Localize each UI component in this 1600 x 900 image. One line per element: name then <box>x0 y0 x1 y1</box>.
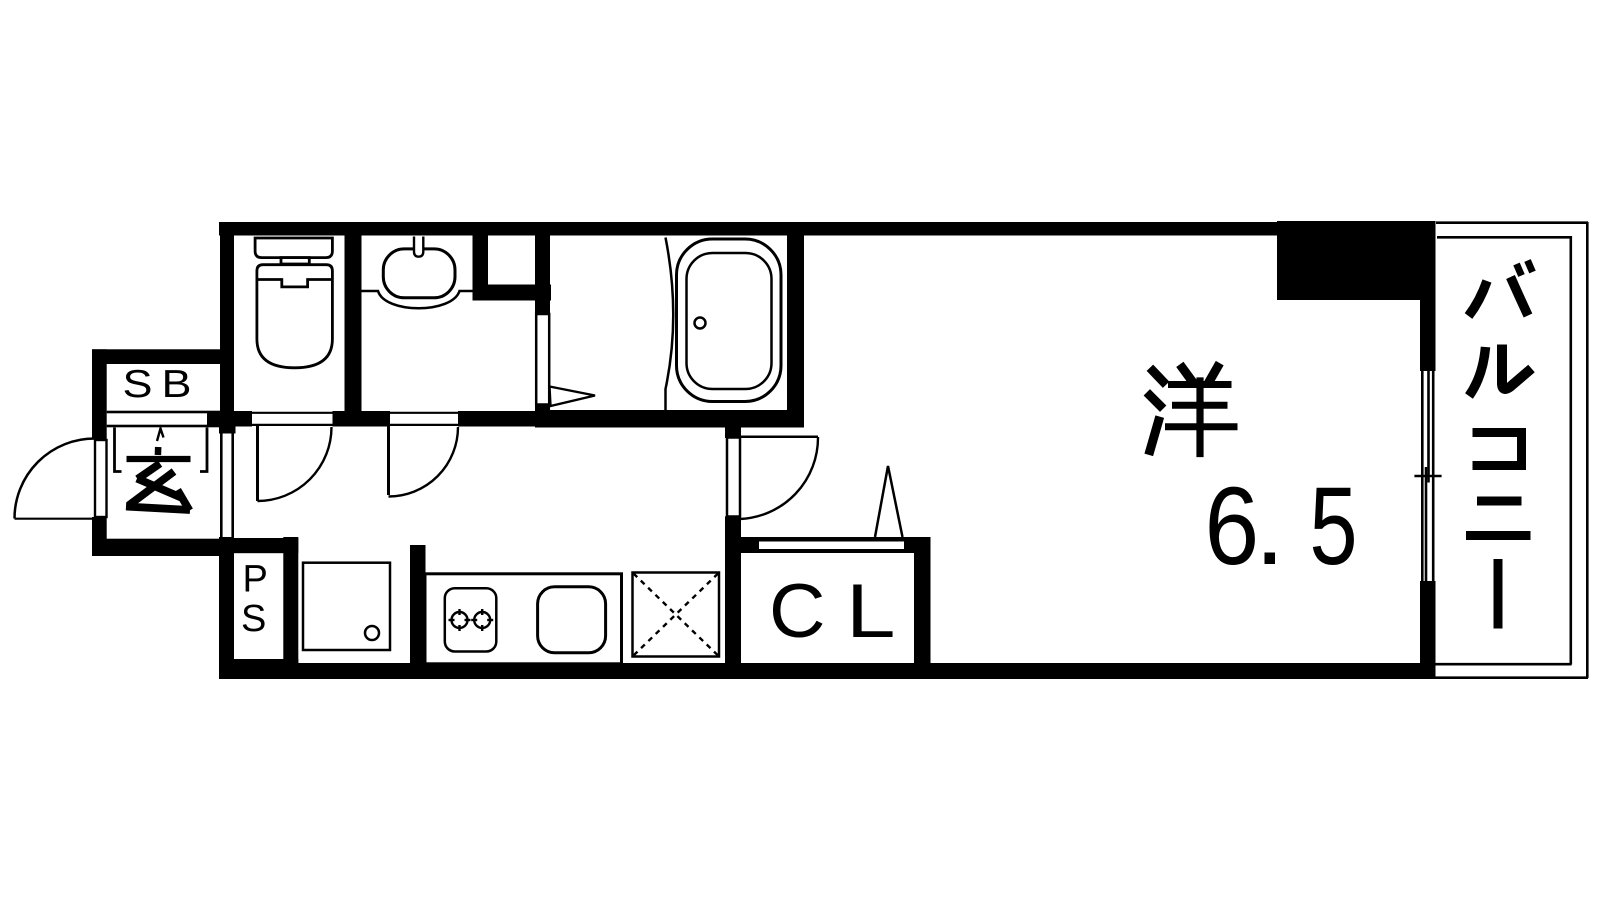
svg-text:C: C <box>769 569 826 654</box>
svg-text:B: B <box>162 363 192 406</box>
svg-text:S: S <box>123 363 153 406</box>
svg-text:P: P <box>243 559 268 601</box>
svg-text:L: L <box>846 569 896 654</box>
svg-text:6: 6 <box>1205 465 1260 588</box>
svg-text:S: S <box>241 598 266 640</box>
svg-text:5: 5 <box>1309 465 1357 588</box>
